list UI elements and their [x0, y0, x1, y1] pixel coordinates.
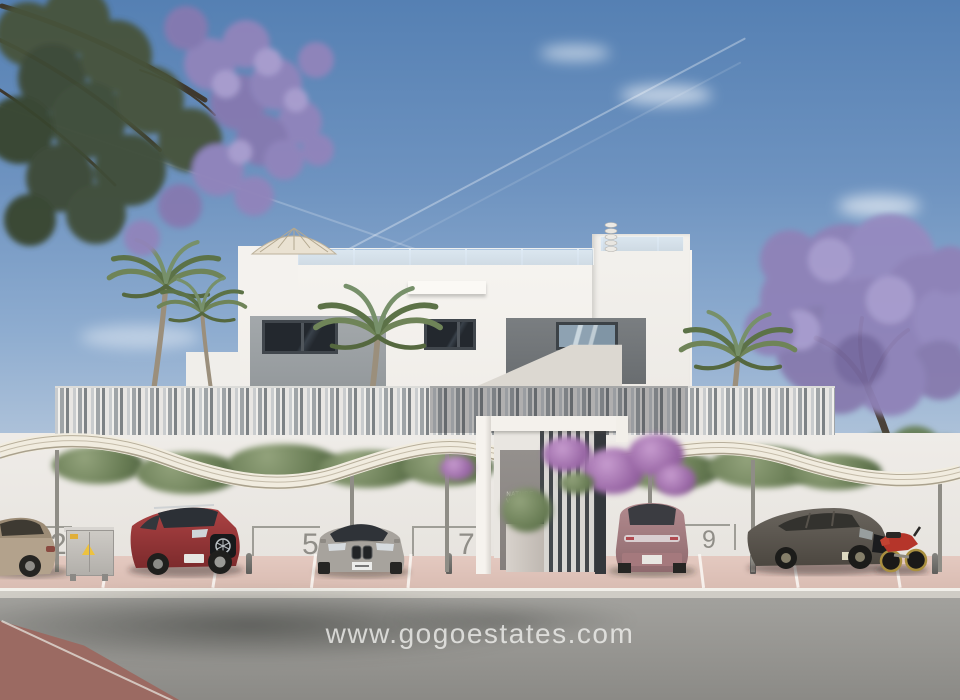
property-render-scene: 2 5 7 9 NATURE VIEWS 3: [0, 0, 960, 700]
utility-box-leg: [70, 574, 76, 581]
car-wagon-dark-icon: [747, 508, 891, 575]
car-suv-red-icon: [128, 505, 244, 577]
car-suv-mauve-icon: [608, 503, 696, 577]
car-sedan-beige-icon: [0, 518, 70, 578]
car-sedan-gray-icon: [314, 524, 410, 578]
utility-box-leg: [102, 574, 108, 581]
jacaranda-branch-icon: [0, 0, 360, 260]
branch-foliage: [0, 0, 334, 256]
watermark: www.gogoestates.com: [0, 618, 960, 650]
utility-box-label: [70, 534, 78, 539]
utility-box-seam: [89, 532, 90, 572]
